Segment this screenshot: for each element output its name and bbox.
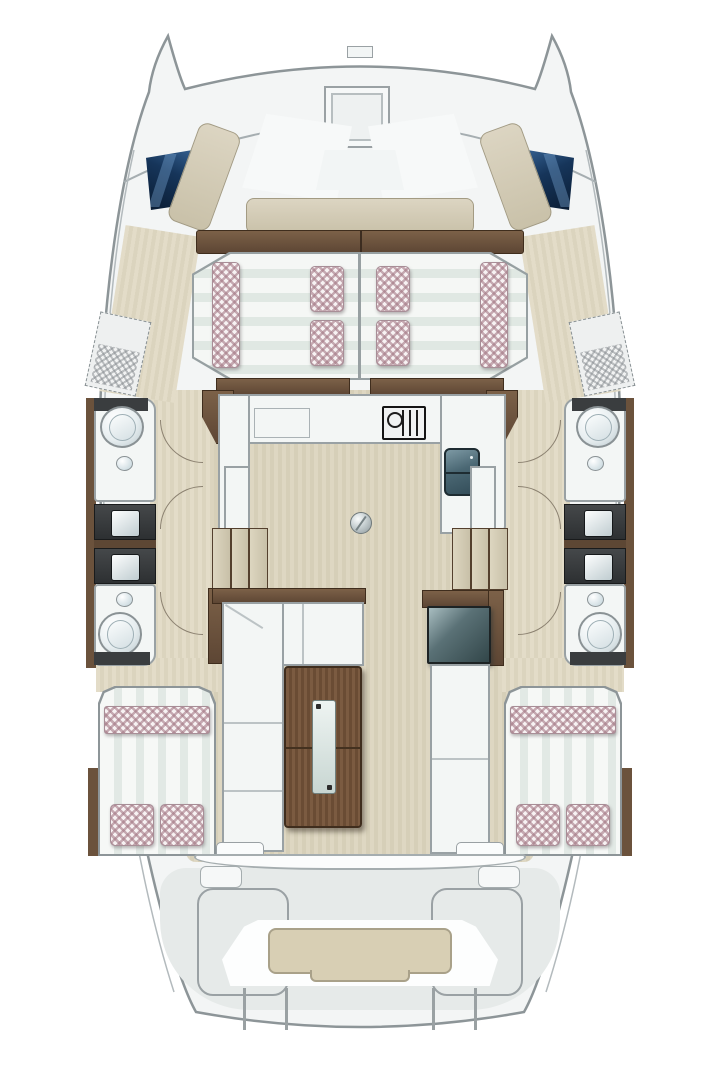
port-companionway-steps — [212, 528, 268, 590]
transom-step-line — [243, 988, 246, 1030]
catamaran-floor-plan — [0, 0, 720, 1080]
toilet — [578, 612, 622, 656]
starboard-companionway-landing — [470, 466, 496, 530]
stove-burner-icon — [387, 412, 403, 428]
forward-berth-bolster-port — [212, 262, 240, 368]
toilet — [576, 406, 620, 448]
galley-counter-hatch — [254, 408, 310, 438]
step-tread — [231, 528, 250, 590]
transom-step-line — [432, 988, 435, 1030]
step-tread — [452, 528, 471, 590]
vanity-divider — [94, 540, 156, 548]
step-tread — [212, 528, 231, 590]
stove — [382, 406, 426, 440]
cool-box — [427, 606, 491, 664]
stove-grate-icon — [402, 410, 422, 436]
sill-tab-starboard — [478, 866, 520, 888]
inlay-latch — [316, 704, 321, 709]
port-companionway-landing — [224, 466, 250, 530]
port-vanity-forward — [94, 504, 156, 540]
toilet — [100, 406, 144, 448]
storage-mesh-cushion — [91, 344, 140, 390]
faucet-dot — [470, 456, 473, 459]
transom-pad-notch — [310, 970, 410, 982]
starboard-cabin-trim — [622, 768, 632, 856]
washbasin — [116, 456, 133, 471]
table-glass-inlay — [312, 700, 336, 794]
fore-bulkhead-band — [196, 230, 524, 254]
head-dark-trim — [570, 652, 626, 665]
vanity-sink — [111, 554, 140, 581]
pillow — [376, 320, 410, 366]
port-cabin-trim — [88, 768, 98, 856]
starboard-vanity-aft — [564, 548, 626, 584]
pillow — [310, 320, 344, 366]
transom-step-line — [474, 988, 477, 1030]
vanity-sink — [584, 510, 613, 537]
transom-seat-pad — [268, 928, 452, 974]
washbasin — [116, 592, 133, 607]
sill-tab-port — [200, 866, 242, 888]
pillow — [376, 266, 410, 312]
berth-checker-band — [510, 706, 616, 734]
vanity-sink — [584, 554, 613, 581]
pillow — [566, 804, 610, 846]
pillow — [310, 266, 344, 312]
starboard-vanity-forward — [564, 504, 626, 540]
port-vanity-aft — [94, 548, 156, 584]
berth-checker-band — [104, 706, 210, 734]
chaise-bench — [430, 664, 490, 854]
floor-round-fitting — [350, 512, 372, 534]
washbasin — [587, 592, 604, 607]
pillow — [160, 804, 204, 846]
foredeck-console — [316, 150, 404, 190]
inlay-latch — [327, 785, 332, 790]
vanity-divider — [564, 540, 626, 548]
step-tread — [249, 528, 268, 590]
pillow — [110, 804, 154, 846]
bow-lounge-bench — [246, 198, 474, 234]
bulkhead-center-split — [360, 231, 362, 253]
step-tread — [489, 528, 508, 590]
fitting-slot — [355, 515, 367, 530]
forward-berth-split — [358, 254, 361, 378]
dining-table — [284, 666, 362, 828]
step-tread — [471, 528, 490, 590]
transom-step-line — [285, 988, 288, 1030]
head-dark-trim — [94, 652, 150, 665]
sofa-side-column — [222, 602, 284, 852]
starboard-companionway-steps — [452, 528, 508, 590]
vanity-sink — [111, 510, 140, 537]
forward-berth-bolster-starboard — [480, 262, 508, 368]
pillow — [516, 804, 560, 846]
washbasin — [587, 456, 604, 471]
bow-center-cleat — [347, 46, 373, 58]
toilet — [98, 612, 142, 656]
storage-mesh-cushion — [580, 344, 629, 390]
